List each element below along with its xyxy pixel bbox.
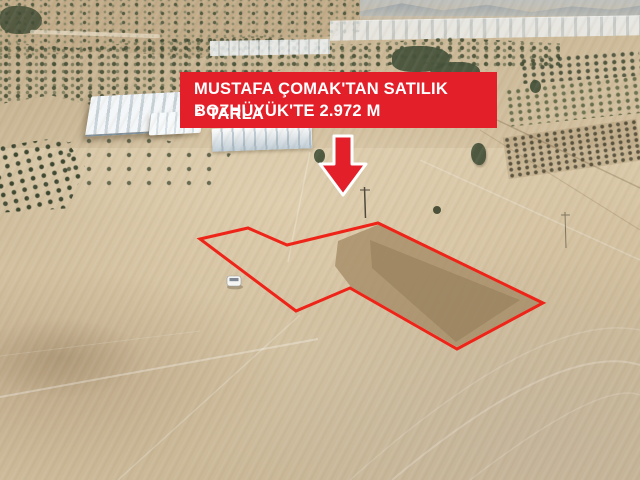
down-arrow-icon [320,136,366,195]
small-bush [433,206,441,214]
banner-line1: MUSTAFA ÇOMAK'TAN SATILIK [194,78,491,100]
utility-pole [561,212,570,248]
banner-line2-text: BOZHÜYÜK'TE 2.972 M [194,100,381,122]
white-car [227,276,243,289]
utility-pole [360,187,370,218]
listing-banner: MUSTAFA ÇOMAK'TAN SATILIK BOZHÜYÜK'TE 2.… [180,72,497,128]
banner-line2: BOZHÜYÜK'TE 2.972 M2TARLA [194,100,491,125]
aerial-photo-listing: MUSTAFA ÇOMAK'TAN SATILIK BOZHÜYÜK'TE 2.… [0,0,640,480]
